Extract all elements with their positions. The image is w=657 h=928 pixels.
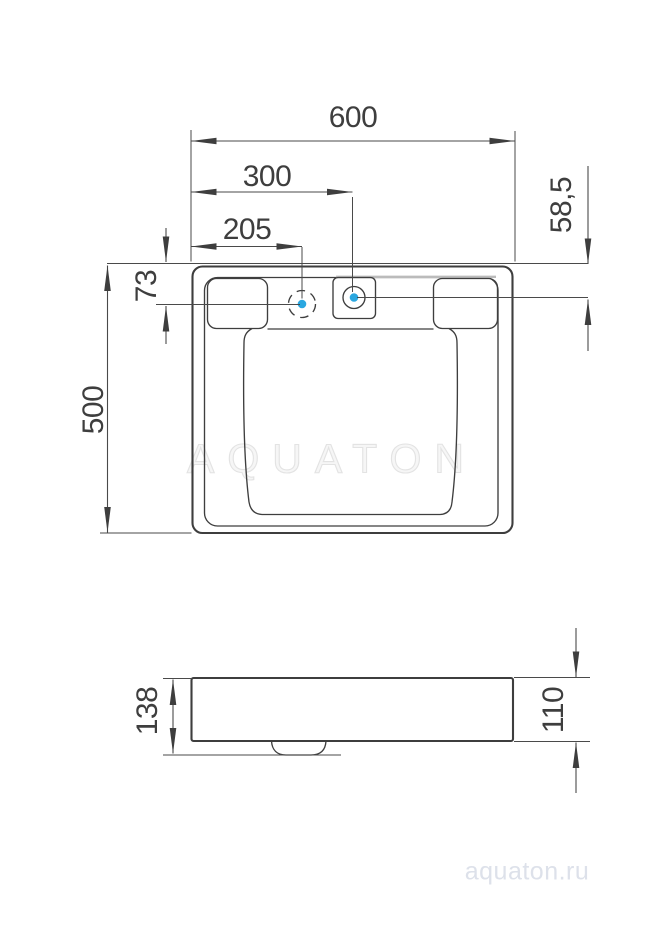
dim-label-alt-hole-from-edge: 73 <box>130 270 163 302</box>
dim-alt-hole-offset-205: 205 <box>191 213 302 247</box>
drain-outline <box>272 741 327 755</box>
bowl-wall-left <box>244 329 252 503</box>
side-profile-outline <box>192 678 514 741</box>
dim-height-total-138: 138 <box>131 680 173 754</box>
dim-label-alt-hole-offset: 205 <box>223 213 272 246</box>
dim-hole-offset-300: 300 <box>191 160 353 193</box>
deck-panel-right <box>434 279 498 329</box>
dim-hole-from-edge-58-5: 58,5 <box>545 166 588 351</box>
dim-label-hole-offset: 300 <box>243 160 292 193</box>
dim-width-600: 600 <box>191 101 515 141</box>
spec-sheet: AQUATON <box>0 0 657 928</box>
dim-label-width: 600 <box>329 101 378 134</box>
dim-depth-500: 500 <box>77 266 110 533</box>
top-view: 600 300 205 58,5 73 <box>77 101 588 533</box>
dim-alt-hole-from-edge-73: 73 <box>130 228 166 344</box>
dim-label-hole-from-edge: 58,5 <box>545 177 578 233</box>
bowl-wall-right <box>449 329 457 503</box>
technical-drawing-canvas: 600 300 205 58,5 73 <box>0 0 657 928</box>
dim-label-height-front: 110 <box>537 687 570 733</box>
side-view: 138 110 <box>131 628 590 793</box>
bowl-bottom-edge <box>249 502 452 515</box>
deck-panel-left <box>208 279 268 329</box>
dim-height-front-110: 110 <box>537 628 576 793</box>
dim-label-depth: 500 <box>77 386 110 435</box>
site-watermark: aquaton.ru <box>465 858 590 887</box>
dim-label-height-total: 138 <box>131 687 164 736</box>
sink-outer-outline <box>193 267 513 534</box>
